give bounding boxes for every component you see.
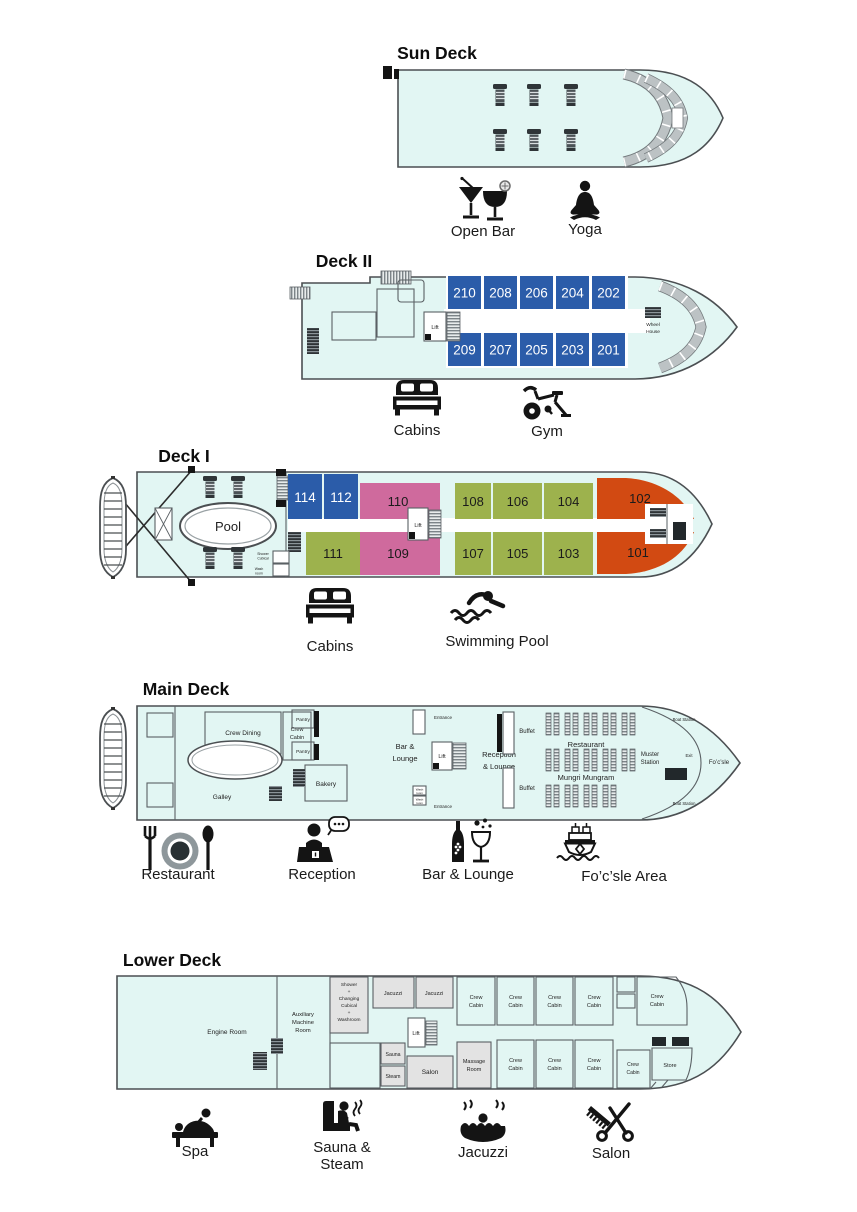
deck1-cabins-bottom: 111 109 107 105 103 101 <box>306 532 694 575</box>
deck2-stairs <box>447 312 460 341</box>
wheel-house-console <box>645 307 661 318</box>
cabin-107-label: 107 <box>462 546 484 561</box>
yoga-icon <box>570 181 600 220</box>
lifeboat <box>100 707 126 810</box>
deck-plan-canvas: Sun Deck Open Bar Yoga <box>0 0 857 1212</box>
sauna-steam-label: Sauna & <box>313 1139 371 1156</box>
deck1-stairs <box>429 510 441 538</box>
massage-room-label: Room <box>467 1067 482 1073</box>
open-bar-icon <box>459 177 510 219</box>
shower-cubical-label: Cubical <box>257 557 269 561</box>
lower-deck-stairs <box>426 1021 437 1045</box>
stair-block <box>293 769 305 787</box>
deck1-section: Deck I Pool 114 112 110 108 106 104 102 <box>100 446 712 655</box>
salon-label: Salon <box>592 1145 630 1162</box>
shower-cubical-label: Shower <box>257 552 269 556</box>
bar-lounge-amenity-label: Bar & Lounge <box>422 866 514 883</box>
cabin-103-label: 103 <box>558 546 580 561</box>
buffet-label: Buffet <box>519 729 535 735</box>
sauna-room-label: Sauna <box>385 1052 400 1058</box>
crew-cabin-label: Cabin <box>469 1003 483 1009</box>
cabin-203-label: 203 <box>561 343 584 358</box>
cabin-108-label: 108 <box>462 494 484 509</box>
cabin-101-label: 101 <box>627 545 649 560</box>
lift-corner <box>433 763 439 769</box>
shower-room-label: + <box>348 1011 351 1016</box>
crew-cabin-label: Cabin <box>547 1066 561 1072</box>
sun-deck-title: Sun Deck <box>397 43 477 63</box>
wash-room-label: room <box>416 791 423 795</box>
casing-oval <box>188 741 282 779</box>
ship-deck-plan: Sun Deck Open Bar Yoga <box>0 0 857 1212</box>
galley-label: Galley <box>213 794 232 801</box>
deck2-section: Deck II 210 208 206 204 202 209 207 205 … <box>290 251 737 440</box>
open-bar-label: Open Bar <box>451 223 515 240</box>
aux-room-label: Room <box>295 1028 311 1034</box>
cabin-209-label: 209 <box>453 343 476 358</box>
shower-room-label: Washroom <box>337 1017 360 1023</box>
cabin-104-label: 104 <box>558 494 580 509</box>
wash-room-label: room <box>416 801 423 805</box>
reception-amenity-label: Reception <box>288 866 356 883</box>
crew-cabin-label: Crew <box>509 1058 522 1064</box>
wheel-house-label: Wheel <box>646 322 660 328</box>
crew-cabin-label: Crew <box>651 994 664 1000</box>
bow-pantry-area <box>645 504 693 544</box>
cabin-204-label: 204 <box>561 286 584 301</box>
massage-room-label: Massage <box>463 1059 485 1065</box>
crew-cabin-label: Cabin <box>508 1066 522 1072</box>
wheel-house-label: House <box>646 329 660 335</box>
exit-label: Exit <box>686 753 694 758</box>
bakery-label: Bakery <box>316 781 337 788</box>
deck2-corridor <box>444 309 650 333</box>
lifeboat <box>100 476 126 579</box>
entrance-label: Entrance <box>434 804 453 809</box>
lower-deck-section: Lower Deck Engine Room Auxiliary Machine… <box>117 950 741 1173</box>
stern-fitting <box>383 66 392 79</box>
main-deck-section: Main Deck Crew Dining Crew Cabin Pantry … <box>100 679 740 885</box>
muster-station-label: Station <box>641 760 660 766</box>
lift-corner <box>425 334 431 340</box>
shower-room-label: Shower <box>341 982 358 988</box>
boat-station-label: Boat Station <box>673 717 696 722</box>
focsle-label: Fo’c’sle <box>709 760 730 766</box>
salon-icon <box>585 1104 633 1140</box>
restaurant-area-label: Restaurant <box>568 740 606 749</box>
cabin-109-label: 109 <box>387 546 409 561</box>
aux-room-label: Auxiliary <box>292 1012 314 1018</box>
main-deck-stairs <box>453 743 466 769</box>
cabins-icon <box>393 380 441 416</box>
restaurant-name-label: Mungri Mungram <box>558 773 615 782</box>
cabin-106-label: 106 <box>507 494 529 509</box>
lower-deck-lift-label: Lift <box>412 1031 420 1037</box>
reception-icon <box>297 817 349 862</box>
crew-cabin-label: Crew <box>548 1058 561 1064</box>
spa-label: Spa <box>182 1143 209 1160</box>
jacuzzi-label: Jacuzzi <box>458 1144 508 1161</box>
stair-landing <box>276 500 286 507</box>
crew-cabin-label: Cabin <box>626 1070 639 1076</box>
massage-room <box>457 1042 491 1088</box>
cabin-202-label: 202 <box>597 286 620 301</box>
gym-label: Gym <box>531 423 563 440</box>
steam-room-label: Steam <box>386 1074 401 1080</box>
crew-dining-label: Crew Dining <box>225 730 261 737</box>
entrance-door <box>413 710 425 734</box>
shower-room-label: + <box>348 990 351 995</box>
lower-deck-title: Lower Deck <box>123 950 221 970</box>
cabins-icon <box>306 588 354 624</box>
crew-cabin-label: Cabin <box>508 1003 522 1009</box>
washroom-boxes: Wash room Wash room <box>413 786 426 805</box>
spa-icon <box>172 1109 218 1148</box>
crew-cabin-label: Cabin <box>587 1003 601 1009</box>
cabin-207-label: 207 <box>489 343 512 358</box>
cabin-110-label: 110 <box>388 494 409 509</box>
swimming-pool-label: Swimming Pool <box>445 633 548 650</box>
pool-label: Pool <box>215 519 241 534</box>
sauna-steam-icon <box>323 1100 362 1131</box>
restaurant-icon <box>145 826 214 871</box>
deck2-cabins-label: Cabins <box>394 422 441 439</box>
entrance-label: Entrance <box>434 715 453 720</box>
stern-fitting <box>394 69 399 79</box>
gangway-stairs <box>290 287 310 299</box>
cabin-208-label: 208 <box>489 286 512 301</box>
bar-lounge-area-label: Bar & <box>396 742 415 751</box>
ship-bow-icon <box>557 823 599 860</box>
deck1-cabins-label: Cabins <box>307 638 354 655</box>
pantry-label: Pantry <box>296 717 310 723</box>
shower-room-label: Changing <box>339 996 360 1002</box>
stair-block <box>307 328 319 354</box>
store-label: Store <box>663 1063 676 1069</box>
buffet-counter <box>503 712 514 754</box>
wash-room-label: Wash <box>255 567 264 571</box>
pantry-label: Pantry <box>296 749 310 755</box>
lift-corner <box>409 532 415 539</box>
cabin-111-label: 111 <box>323 546 343 561</box>
deck1-title: Deck I <box>158 446 210 466</box>
cabin-102-label: 102 <box>629 491 651 506</box>
cabin-105-label: 105 <box>507 546 529 561</box>
engine-block <box>271 1038 283 1054</box>
cabin-114-label: 114 <box>294 490 316 505</box>
restaurant-amenity-label: Restaurant <box>141 866 215 883</box>
crew-cabin-label: Crew <box>627 1062 639 1068</box>
cabin-205-label: 205 <box>525 343 548 358</box>
jacuzzi-room-label: Jacuzzi <box>425 991 443 997</box>
engine-room-label: Engine Room <box>207 1029 246 1036</box>
crew-cabin-label: Cabin <box>290 735 304 741</box>
swimmer-icon <box>451 591 503 623</box>
deck2-title: Deck II <box>316 251 372 271</box>
buffet-label: Buffet <box>519 786 535 792</box>
main-deck-title: Main Deck <box>143 679 230 699</box>
engine-block <box>253 1052 267 1070</box>
crew-cabin-label: Crew <box>588 1058 601 1064</box>
crew-cabin-label: Cabin <box>587 1066 601 1072</box>
crew-cabin-label: Cabin <box>650 1002 664 1008</box>
aux-room-label: Machine <box>292 1020 314 1026</box>
focsle-area-amenity-label: Fo’c’sle Area <box>581 868 667 885</box>
stair-landing <box>276 469 286 476</box>
deck2-cabins-top: 210 208 206 204 202 <box>448 276 625 309</box>
deck2-lift-label: Lift <box>431 325 439 331</box>
pantry-counter <box>314 711 319 737</box>
muster-block <box>665 768 687 780</box>
deck1-lift-label: Lift <box>414 523 422 529</box>
buffet-bar <box>497 714 502 752</box>
main-deck-lift-label: Lift <box>438 754 446 760</box>
stair-block <box>269 786 282 801</box>
shower-room-label: Cubical <box>341 1003 357 1009</box>
yoga-label: Yoga <box>568 221 602 238</box>
crew-cabin-label: Crew <box>548 995 561 1001</box>
pantry-counter <box>314 744 319 760</box>
cabin-112-label: 112 <box>330 490 352 505</box>
wash-room-label: room <box>255 572 263 576</box>
bar-lounge-icon <box>452 819 492 863</box>
jacuzzi-room-label: Jacuzzi <box>384 991 402 997</box>
buffet-counter <box>503 768 514 808</box>
cabin-206-label: 206 <box>525 286 548 301</box>
muster-station-label: Muster <box>641 752 659 758</box>
crew-cabin-label: Crew <box>470 995 483 1001</box>
crew-cabin-label: Cabin <box>547 1003 561 1009</box>
sun-deck-section: Sun Deck Open Bar Yoga <box>383 43 723 240</box>
crew-cabin-label: Crew <box>588 995 601 1001</box>
deck2-cabins-bottom: 209 207 205 203 201 <box>448 333 625 366</box>
sauna-steam-label: Steam <box>320 1156 363 1173</box>
stair-block <box>288 532 301 552</box>
jacuzzi-icon <box>461 1100 506 1142</box>
crew-cabin-label: Crew <box>509 995 522 1001</box>
deck1-corridor <box>288 518 645 532</box>
cabin-201-label: 201 <box>597 343 620 358</box>
cabin-210-label: 210 <box>453 286 476 301</box>
top-stairs <box>381 271 411 284</box>
bar-lounge-area-label: Lounge <box>392 754 417 763</box>
gym-icon <box>524 388 572 420</box>
boat-station-label: Boat Station <box>673 801 696 806</box>
deck1-stairs <box>277 476 288 500</box>
salon-room-label: Salon <box>422 1069 439 1076</box>
